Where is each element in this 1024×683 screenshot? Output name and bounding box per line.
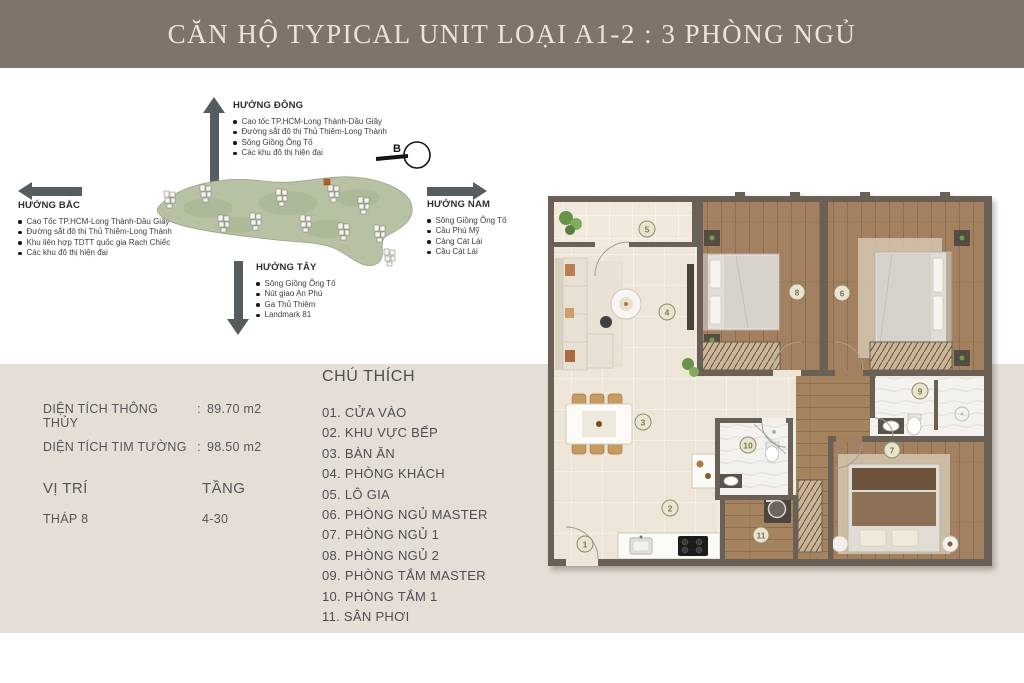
cooktop [678, 536, 708, 556]
room-marker-5: 5 [639, 221, 656, 238]
svg-text:B: B [393, 143, 401, 155]
location-values: THÁP 8 4-30 [43, 512, 262, 526]
bullet-dot-icon [18, 252, 22, 256]
room-marker-3: 3 [635, 414, 652, 431]
area-value: 89.70 m2 [207, 402, 262, 430]
bullet-dot-icon [18, 231, 22, 235]
room-marker-10: 10 [740, 437, 757, 454]
south-arrow-icon [427, 182, 487, 200]
direction-east-list: Cao tốc TP.HCM-Long Thành-Dầu GiâyĐường … [233, 117, 387, 159]
direction-south-title: HƯỚNG NAM [427, 199, 507, 210]
bullet-dot-icon [427, 240, 431, 244]
room-marker-4: 4 [659, 304, 676, 321]
legend: CHÚ THÍCH 01. CỬA VÀO02. KHU VỰC BẾP03. … [322, 368, 488, 627]
area-value: 98.50 m2 [207, 440, 262, 454]
floor-label: TẦNG [202, 480, 245, 497]
legend-item: 07. PHÒNG NGỦ 1 [322, 525, 488, 545]
bullet-dot-icon [256, 282, 260, 286]
bullet-dot-icon [256, 303, 260, 307]
bullet-dot-icon [233, 131, 237, 135]
compass-north-icon: B [372, 126, 442, 182]
bullet-dot-icon [233, 120, 237, 124]
bullet-dot-icon [256, 293, 260, 297]
area-info: DIỆN TÍCH THÔNG THỦY:89.70 m2 DIỆN TÍCH … [43, 402, 262, 526]
bullet-dot-icon [427, 230, 431, 234]
direction-east: HƯỚNG ĐÔNG Cao tốc TP.HCM-Long Thành-Dầu… [233, 100, 387, 159]
direction-west-list: Sông Giồng Ông TốNút giao An PhúGa Thủ T… [256, 279, 336, 321]
area-row: DIỆN TÍCH TIM TƯỜNG:98.50 m2 [43, 440, 262, 454]
floor-plan-drawing [540, 192, 1000, 572]
bullet-dot-icon [18, 220, 22, 224]
direction-south: HƯỚNG NAM Sông Giồng Ông TốCầu Phú MỹCản… [427, 199, 507, 258]
bullet-dot-icon [18, 241, 22, 245]
legend-item: 06. PHÒNG NGỦ MASTER [322, 505, 488, 525]
legend-item: 05. LÔ GIA [322, 485, 488, 505]
room-marker-6: 6 [834, 285, 851, 302]
legend-item: 03. BÀN ĂN [322, 444, 488, 464]
location-headers: VỊ TRÍ TẦNG [43, 480, 262, 497]
legend-item: 08. PHÒNG NGỦ 2 [322, 546, 488, 566]
direction-south-list: Sông Giồng Ông TốCầu Phú MỹCảng Cát LáiC… [427, 216, 507, 258]
bullet-dot-icon [233, 141, 237, 145]
tv-console [687, 264, 694, 330]
bullet-dot-icon [256, 314, 260, 318]
position-label: VỊ TRÍ [43, 480, 202, 497]
direction-bullet: Cầu Phú Mỹ [427, 226, 507, 236]
direction-bullet: Các khu đô thị hiện đại [233, 148, 387, 158]
wardrobe [702, 342, 780, 370]
room-marker-2: 2 [662, 500, 679, 517]
highlighted-tower [324, 179, 330, 185]
legend-item: 01. CỬA VÀO [322, 403, 488, 423]
direction-bullet: Ga Thủ Thiêm [256, 300, 336, 310]
bullet-dot-icon [233, 152, 237, 156]
wardrobe [870, 342, 952, 370]
direction-east-title: HƯỚNG ĐÔNG [233, 100, 387, 111]
direction-bullet: Nút giao An Phú [256, 289, 336, 299]
toilet [907, 417, 921, 435]
legend-item: 09. PHÒNG TẮM MASTER [322, 566, 488, 586]
direction-bullet: Đường sắt đô thị Thủ Thiêm-Long Thành [233, 127, 387, 137]
direction-bullet: Cao tốc TP.HCM-Long Thành-Dầu Giây [233, 117, 387, 127]
sofa [555, 258, 563, 370]
kitchen-cabinet [692, 454, 718, 488]
legend-item: 02. KHU VỰC BẾP [322, 423, 488, 443]
page-title: CĂN HỘ TYPICAL UNIT LOẠI A1-2 : 3 PHÒNG … [168, 19, 857, 50]
floor-value: 4-30 [202, 512, 228, 526]
direction-bullet: Cầu Cát Lái [427, 247, 507, 257]
bullet-dot-icon [427, 251, 431, 255]
toilet [766, 446, 779, 462]
legend-item: 10. PHÒNG TẮM 1 [322, 587, 488, 607]
direction-bullet: Cảng Cát Lái [427, 237, 507, 247]
legend-item: 11. SÂN PHƠI [322, 607, 488, 627]
legend-item: 04. PHÒNG KHÁCH [322, 464, 488, 484]
direction-bullet: Landmark 81 [256, 310, 336, 320]
position-value: THÁP 8 [43, 512, 202, 526]
room-marker-7: 7 [884, 442, 901, 459]
shoe-cabinet [798, 480, 822, 552]
side-stool [600, 316, 612, 328]
room-marker-1: 1 [577, 536, 594, 553]
side-table [832, 536, 848, 552]
room-marker-11: 11 [753, 527, 770, 544]
legend-list: 01. CỬA VÀO02. KHU VỰC BẾP03. BÀN ĂN04. … [322, 403, 488, 627]
area-row: DIỆN TÍCH THÔNG THỦY:89.70 m2 [43, 402, 262, 430]
room-marker-9: 9 [912, 383, 929, 400]
title-bar: CĂN HỘ TYPICAL UNIT LOẠI A1-2 : 3 PHÒNG … [0, 0, 1024, 68]
direction-bullet: Sông Giồng Ông Tố [427, 216, 507, 226]
room-marker-8: 8 [789, 284, 806, 301]
direction-bullet: Sông Giồng Ông Tố [233, 138, 387, 148]
bullet-dot-icon [427, 219, 431, 223]
direction-bullet: Sông Giồng Ông Tố [256, 279, 336, 289]
north-arrow-icon [18, 182, 82, 200]
floor-plan: 1234567891011 [540, 192, 1000, 572]
legend-title: CHÚ THÍCH [322, 368, 488, 386]
